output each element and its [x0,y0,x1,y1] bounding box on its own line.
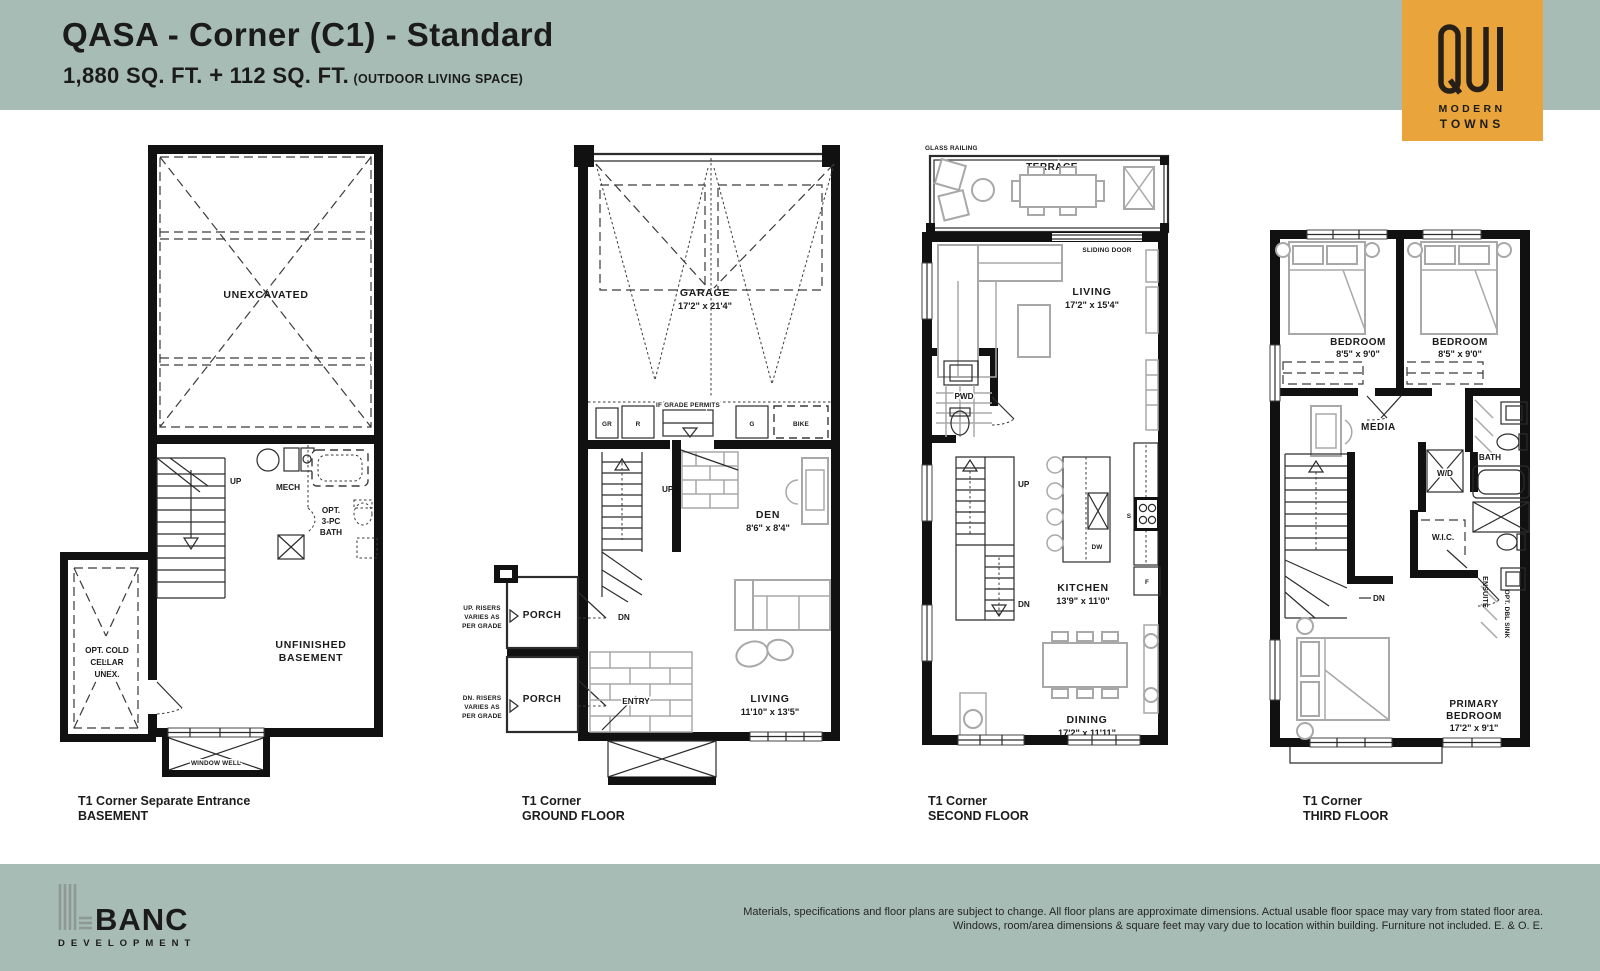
banc-stripes-icon [60,884,92,930]
qui-modern-towns-logo: MODERN TOWNS [1402,0,1543,141]
label-garage: GARAGE [680,287,730,299]
basement-mech-fixtures [257,448,314,471]
label-dn-risers-3: PER GRADE [462,713,502,720]
porches [494,565,606,732]
page-subtitle: 1,880 SQ. FT. + 112 SQ. FT. (OUTDOOR LIV… [63,62,523,90]
label-window-well: WINDOW WELL [191,760,241,767]
label-entry: ENTRY [622,697,650,706]
label-living-second: LIVING [1072,286,1111,298]
caption-second-line2: SECOND FLOOR [928,809,1029,824]
basement-door [148,680,182,714]
label-bike: BIKE [793,421,810,428]
banc-development-text: DEVELOPMENT [58,938,196,949]
label-wd: W/D [1437,469,1453,478]
caption-second: T1 Corner SECOND FLOOR [928,794,1029,823]
basement-opt-bath-fixtures [278,445,377,559]
label-living-ground-dims: 11'10" x 13'5" [741,707,800,717]
ground-stairs [602,452,642,602]
caption-basement-line1: T1 Corner Separate Entrance [78,794,250,809]
plan-basement: UNEXCAVATED UP MECH OPT. 3-PC B [60,140,400,785]
label-up-risers-2: VARIES AS [464,614,500,621]
caption-basement-line2: BASEMENT [78,809,250,824]
caption-ground: T1 Corner GROUND FLOOR [522,794,625,823]
label-second-up: UP [1018,480,1030,489]
label-bedroom-1: BEDROOM [1330,337,1386,348]
floorplan-sheet: QASA - Corner (C1) - Standard 1,880 SQ. … [0,0,1600,971]
label-media: MEDIA [1361,422,1396,433]
disclaimer-line2: Windows, room/area dimensions & square f… [743,920,1543,934]
label-fridge: F [1145,579,1149,586]
label-opt-bath-2: 3-PC [322,517,341,526]
label-cold-cellar-3: UNEX. [94,670,119,679]
label-cold-cellar-2: CELLAR [90,658,123,667]
label-unexcavated: UNEXCAVATED [223,289,308,301]
label-porch-1: PORCH [523,610,562,621]
basement-window-well [162,728,270,777]
label-g: G [749,421,754,428]
label-if-grade-permits: IF GRADE PERMITS [656,402,720,409]
label-r: R [636,421,641,428]
label-living-ground: LIVING [750,693,789,705]
label-primary-1: PRIMARY [1449,699,1498,710]
label-den-dims: 8'6" x 8'4" [746,523,790,533]
living-furniture-ground [733,580,830,671]
banc-logo-mark: BANC DEVELOPMENT [55,880,245,950]
caption-ground-line1: T1 Corner [522,794,625,809]
area-outdoor-note: (OUTDOOR LIVING SPACE) [353,72,523,86]
label-sink: S [1127,513,1132,520]
caption-basement: T1 Corner Separate Entrance BASEMENT [78,794,250,823]
label-wic: W.I.C. [1432,533,1454,542]
label-living-second-dims: 17'2" x 15'4" [1065,300,1119,310]
qui-logo-mark: MODERN TOWNS [1402,0,1543,141]
label-porch-2: PORCH [523,694,562,705]
entry-floor-brick [590,652,692,732]
label-opt-dbl-sink: OPT. DBL SINK [1503,590,1510,639]
kitchen-counter [1134,443,1160,595]
label-glass-railing: GLASS RAILING [925,145,978,152]
label-bedroom-2-dims: 8'5" x 9'0" [1438,349,1482,359]
plus-sign: + [207,62,225,89]
plan-ground: GARAGE 17'2" x 21'4" GR R IF GRADE PERMI… [450,140,850,785]
label-ground-up: UP [662,485,674,494]
qui-letter-i [1497,27,1503,91]
logo-towns: TOWNS [1440,117,1504,131]
riser-notes [510,610,518,712]
bedroom-doors [1367,396,1401,420]
den-furniture [786,458,828,524]
label-bath: BATH [1479,453,1501,462]
second-stairs [956,457,1014,620]
label-ensuite: ENSUITE [1481,576,1488,608]
label-pwd: PWD [954,392,973,401]
label-unfinished-1: UNFINISHED [275,639,346,651]
plan-second: GLASS RAILING TERRACE [900,135,1190,785]
plan-third: BEDROOM 8'5" x 9'0" BEDROOM 8'5" x 9'0" … [1255,220,1545,780]
label-den: DEN [756,509,780,521]
label-opt-bath-3: BATH [320,528,342,537]
label-second-dn: DN [1018,600,1030,609]
banc-development-logo: BANC DEVELOPMENT [55,880,245,955]
wic [1421,520,1467,568]
label-up-risers-3: PER GRADE [462,623,502,630]
label-bedroom-1-dims: 8'5" x 9'0" [1336,349,1380,359]
label-garage-dims: 17'2" x 21'4" [678,301,732,311]
label-gr: GR [602,421,612,428]
dining-furniture [960,625,1158,741]
banc-wordmark: BANC [95,902,189,937]
primary-bed-furniture [1297,618,1389,739]
label-dn-risers-2: VARIES AS [464,704,500,711]
area-outdoor: 112 SQ. FT. [230,63,349,88]
caption-third: T1 Corner THIRD FLOOR [1303,794,1388,823]
bedroom-furniture [1276,242,1511,384]
label-dining: DINING [1067,714,1108,726]
garage-hatch [596,158,834,398]
caption-third-line2: THIRD FLOOR [1303,809,1388,824]
media-furniture [1311,406,1352,456]
label-up-risers-1: UP. RISERS [463,605,501,612]
label-kitchen-dims: 13'9" x 11'0" [1056,596,1109,606]
logo-modern: MODERN [1438,103,1505,115]
label-sliding-door: SLIDING DOOR [1082,247,1131,254]
label-bedroom-2: BEDROOM [1432,337,1488,348]
label-primary-2: BEDROOM [1446,711,1502,722]
label-ground-dn: DN [618,613,630,622]
label-kitchen: KITCHEN [1057,582,1109,594]
terrace-furniture [935,159,1154,220]
label-third-dn: DN [1373,594,1385,603]
area-total: 1,880 SQ. FT. [63,63,203,88]
basement-stairs [157,458,225,598]
caption-ground-line2: GROUND FLOOR [522,809,625,824]
label-up: UP [230,477,242,486]
label-dn-risers-1: DN. RISERS [463,695,502,702]
label-primary-dims: 17'2" x 9'1" [1450,723,1499,733]
third-stairs [1285,454,1347,618]
caption-second-line1: T1 Corner [928,794,1029,809]
label-opt-bath-1: OPT. [322,506,340,515]
disclaimer-line1: Materials, specifications and floor plan… [743,906,1543,920]
caption-third-line1: T1 Corner [1303,794,1388,809]
label-unfinished-2: BASEMENT [279,652,344,664]
garage-door [594,154,822,161]
label-mech: MECH [276,483,300,492]
page-title: QASA - Corner (C1) - Standard [62,16,554,54]
disclaimer-text: Materials, specifications and floor plan… [743,906,1543,933]
label-cold-cellar-1: OPT. COLD [85,646,129,655]
label-dw: DW [1091,544,1103,551]
entry-closet-brick [681,450,738,508]
qui-letter-u [1469,27,1486,90]
